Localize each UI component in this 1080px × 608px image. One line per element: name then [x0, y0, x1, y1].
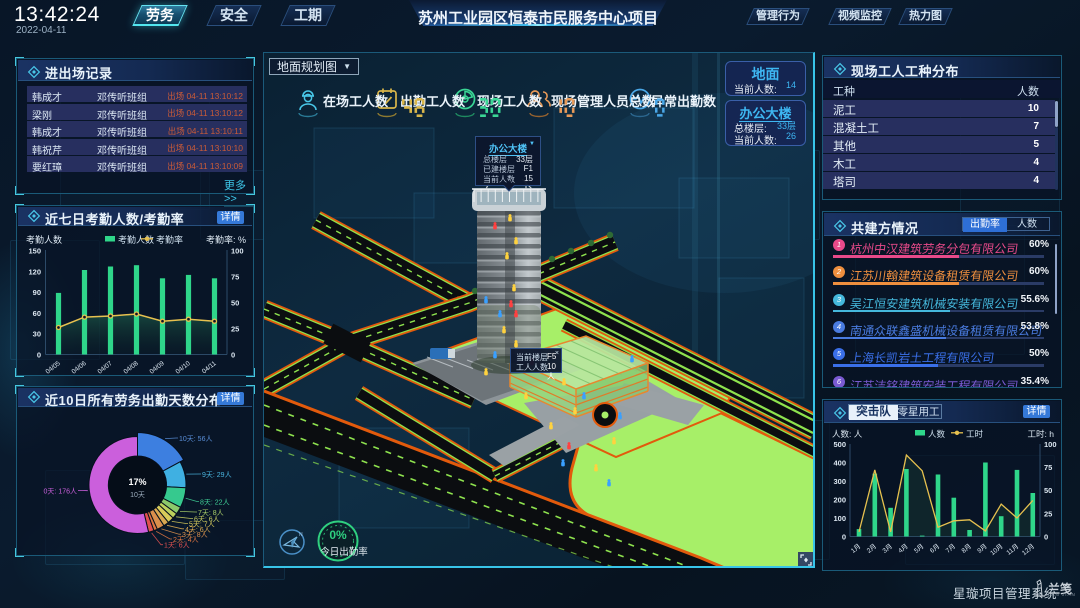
svg-text:3月: 3月: [881, 542, 894, 555]
svg-text:100: 100: [1044, 440, 1057, 449]
svg-text:考勤率: %: 考勤率: %: [206, 234, 246, 245]
svg-text:8天: 22人: 8天: 22人: [200, 499, 230, 507]
svg-text:100: 100: [231, 247, 244, 256]
svg-text:50: 50: [231, 299, 239, 308]
svg-text:90: 90: [33, 288, 41, 297]
svg-text:75: 75: [231, 273, 239, 282]
svg-text:75: 75: [1044, 463, 1052, 472]
svg-text:400: 400: [833, 459, 846, 468]
svg-text:25: 25: [231, 325, 239, 334]
svg-text:04/10: 04/10: [175, 360, 192, 376]
svg-text:考勤率: 考勤率: [156, 234, 183, 245]
svg-text:17%: 17%: [128, 477, 146, 487]
svg-text:N: N: [299, 532, 303, 538]
svg-text:0: 0: [37, 351, 41, 360]
svg-text:10天: 10天: [130, 491, 145, 499]
svg-text:120: 120: [28, 267, 41, 276]
svg-text:25: 25: [1044, 509, 1052, 518]
svg-text:2月: 2月: [865, 542, 878, 555]
svg-text:04/08: 04/08: [123, 360, 140, 376]
svg-text:0天: 176人: 0天: 176人: [44, 488, 77, 496]
svg-text:9月: 9月: [976, 542, 989, 555]
svg-text:100: 100: [833, 514, 846, 523]
svg-text:10月: 10月: [989, 542, 1005, 557]
svg-text:0: 0: [842, 533, 846, 542]
svg-text:200: 200: [833, 496, 846, 505]
svg-text:12月: 12月: [1020, 542, 1036, 557]
svg-text:8月: 8月: [960, 542, 973, 555]
svg-text:500: 500: [833, 440, 846, 449]
svg-text:10天: 56人: 10天: 56人: [179, 435, 212, 443]
svg-text:0%: 0%: [329, 528, 347, 542]
svg-text:04/05: 04/05: [45, 360, 62, 376]
svg-text:04/11: 04/11: [201, 360, 218, 375]
svg-text:人数: 人: 人数: 人: [832, 429, 863, 439]
svg-text:工时: 工时: [966, 429, 984, 439]
svg-text:7月: 7月: [944, 542, 957, 555]
svg-text:60: 60: [33, 309, 41, 318]
svg-text:150: 150: [28, 247, 41, 256]
svg-text:4月: 4月: [897, 542, 910, 555]
svg-text:0: 0: [1044, 533, 1048, 542]
svg-text:0: 0: [231, 351, 235, 360]
svg-text:6月: 6月: [928, 542, 941, 555]
svg-text:300: 300: [833, 477, 846, 486]
svg-text:工时: h: 工时: h: [1028, 429, 1055, 439]
svg-text:1天: 6人: 1天: 6人: [164, 542, 190, 550]
svg-text:11月: 11月: [1005, 542, 1020, 556]
svg-text:人数: 人数: [928, 429, 946, 439]
svg-text:考勤人数: 考勤人数: [26, 234, 62, 245]
svg-text:9天: 29人: 9天: 29人: [202, 471, 232, 479]
svg-text:5月: 5月: [913, 542, 926, 555]
svg-text:04/06: 04/06: [71, 360, 88, 376]
svg-text:50: 50: [1044, 486, 1052, 495]
svg-text:04/07: 04/07: [97, 360, 114, 376]
svg-text:30: 30: [33, 330, 41, 339]
svg-text:04/09: 04/09: [149, 360, 166, 376]
svg-text:1月: 1月: [849, 542, 862, 555]
